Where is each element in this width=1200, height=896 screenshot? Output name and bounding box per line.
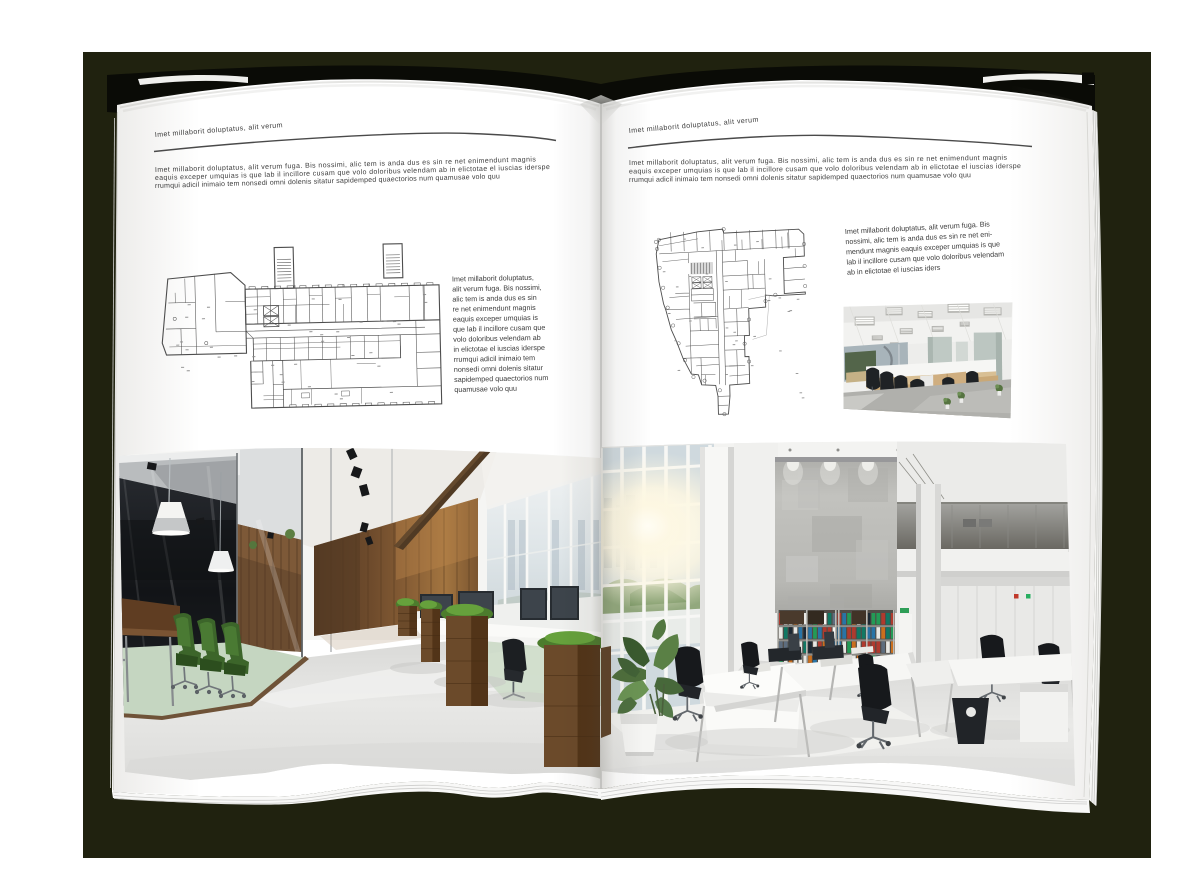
svg-text:eaquis exceper umquias is: eaquis exceper umquias is (453, 313, 539, 324)
svg-text:rrumqui adicil inimaio tem: rrumqui adicil inimaio tem (454, 353, 536, 364)
svg-text:quamusae volo quu: quamusae volo quu (454, 384, 517, 394)
svg-text:Imet millaborit doluptatus,: Imet millaborit doluptatus, (452, 273, 534, 284)
svg-text:alit verum fuga. Bis nossimi,: alit verum fuga. Bis nossimi, (452, 283, 542, 294)
svg-text:re net enimendunt magnis: re net enimendunt magnis (452, 303, 536, 314)
svg-text:volo doloribus velendam ab: volo doloribus velendam ab (453, 333, 541, 344)
svg-text:alic tem is anda dus es sin: alic tem is anda dus es sin (452, 293, 536, 304)
svg-text:nonsedi omni dolenis sitatur: nonsedi omni dolenis sitatur (454, 363, 544, 374)
svg-text:in elictotae el iuscias idersp: in elictotae el iuscias iderspe (453, 343, 545, 354)
